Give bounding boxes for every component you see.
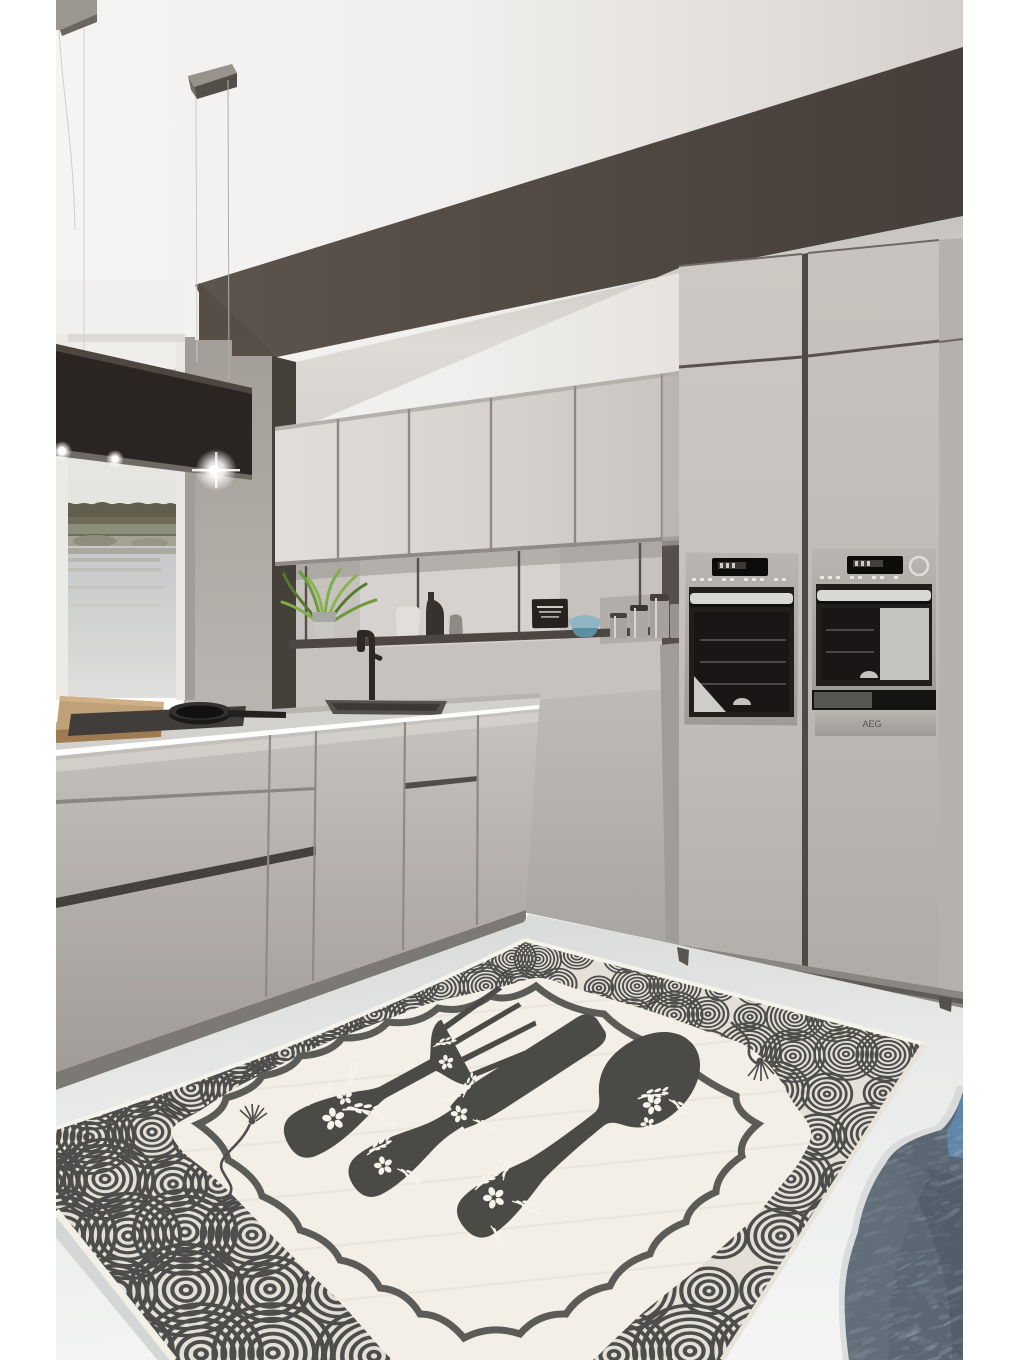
svg-text:AEG: AEG bbox=[862, 719, 881, 729]
